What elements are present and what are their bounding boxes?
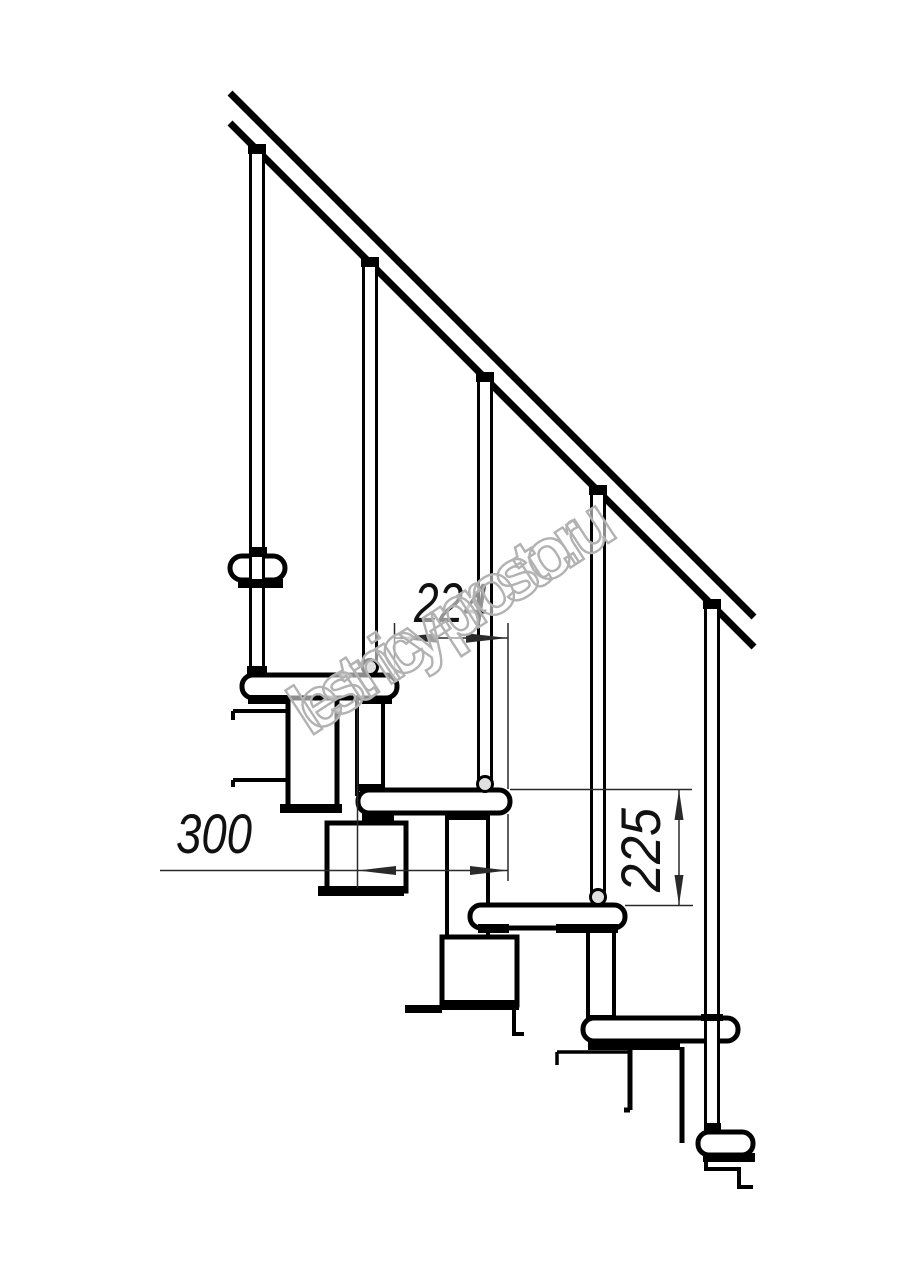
tread-3-right-cap [556,924,618,933]
rail-cap-3 [476,372,494,382]
stub-top-under-strip [238,579,283,588]
stub-top-joint-cap [249,547,267,557]
watermark: lestnicy-prosto.ru [275,484,626,750]
module-b-bottom-cap [318,886,404,896]
rail-cap-2 [361,257,379,267]
tread-2-right-cap [445,812,490,820]
baluster-1-foot [247,666,267,675]
drawing-canvas: 224 300 225 lestnicy-prosto.ru [0,0,914,1280]
tread-3-left-cap [478,924,509,933]
baluster-2 [364,265,377,663]
module-c-right-bracket [514,1010,524,1034]
rail-cap-1 [248,144,266,154]
baluster-5 [706,607,719,1132]
baluster-4-ball-joint [591,890,606,905]
rail-cap-5 [703,599,721,609]
module-a-bottom-cap [280,804,342,813]
stub-bottom-cut-zigzag [706,1162,753,1187]
module-cut-lines-top [233,711,288,787]
riser-1-bottom-nub [355,784,385,791]
staircase-drawing: 224 300 225 lestnicy-prosto.ru [0,0,914,1280]
watermark-text: lestnicy-prosto.ru [275,484,626,750]
module-c-bottom-cap [440,1000,519,1010]
dim-225-down-arrow [675,875,684,905]
module-d [624,1047,682,1143]
stub-bottom-under-strip [703,1153,755,1162]
baluster-1 [251,152,264,675]
tread-2 [358,790,510,813]
dim-225-label: 225 [609,807,672,893]
riser-tube-3 [588,931,614,1017]
tread-4-under-strip [588,1041,680,1050]
dim-225-up-arrow [675,790,684,820]
module-b [327,823,406,891]
stub-bottom-joint-cap [704,1123,721,1133]
module-c [442,937,517,1005]
module-c-left-strip [405,1005,442,1013]
tread-bottom-stub [698,1132,753,1155]
baluster-5-tread-4-nub [701,1014,723,1021]
dim-300-label: 300 [176,802,252,865]
baluster-3-ball-joint [478,777,493,792]
module-d-cut-lines [557,1052,630,1065]
tread-2-left-cap [362,811,394,821]
rail-cap-4 [589,485,607,495]
